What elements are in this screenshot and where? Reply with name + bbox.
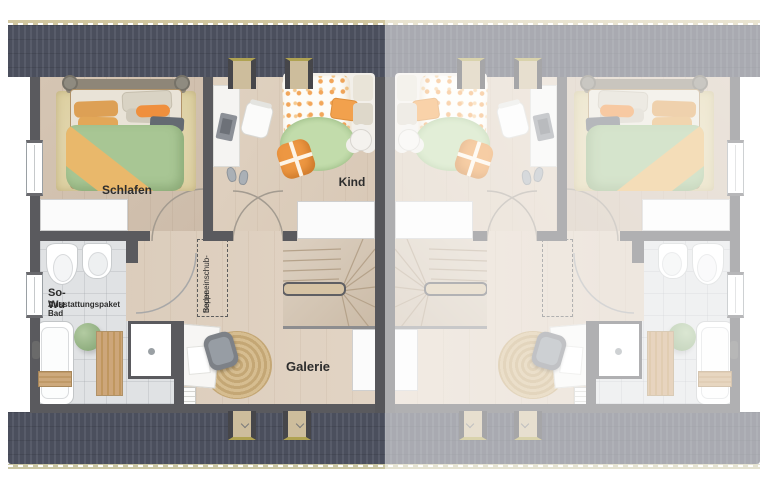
bathtub-tray [698, 371, 732, 387]
child-desk [213, 85, 240, 167]
double-bed [584, 79, 704, 191]
pillow [652, 100, 697, 118]
bidet [82, 243, 112, 279]
child-room-label: Kind [330, 175, 374, 189]
double-bed [66, 79, 186, 191]
interior-wall [537, 231, 557, 241]
bathtub-faucet [730, 341, 738, 359]
wooden-bath-mat [647, 331, 674, 396]
roof-dormer [514, 58, 542, 89]
bed-duvet [66, 125, 184, 191]
bathroom-door-jamb [632, 235, 644, 263]
knee-wall-storage [297, 201, 375, 239]
built-in-closet [352, 329, 376, 391]
pillow [397, 75, 417, 101]
bathtub [696, 321, 734, 405]
staircase [283, 239, 375, 329]
window [26, 272, 43, 318]
staircase [395, 239, 487, 329]
knee-wall-storage [395, 201, 473, 239]
toilet [46, 243, 78, 285]
child-desk [530, 85, 557, 167]
party-wall [385, 77, 395, 413]
roof-dormer [457, 58, 485, 89]
bathtub [36, 321, 74, 405]
attic-stair-outline [542, 239, 573, 317]
roof-dormer [459, 411, 487, 440]
gallery-label: Galerie [285, 359, 331, 374]
dormer-mark [296, 420, 304, 428]
roof-dormer [514, 411, 542, 440]
pillow [74, 100, 119, 118]
party-wall [375, 77, 385, 413]
roof-dormer [285, 58, 313, 89]
toilet [692, 243, 724, 285]
roof-ridge-top [8, 20, 760, 25]
shower [596, 321, 642, 379]
bidet [658, 243, 688, 279]
roof-ridge-bottom [8, 464, 760, 469]
roof-dormer [228, 58, 256, 89]
bed-duvet [586, 125, 704, 191]
bathroom-door-jamb [126, 235, 138, 263]
flower-pouf [350, 129, 372, 151]
roof-dormer [228, 411, 256, 440]
laptop [215, 113, 237, 142]
bathtub-tray [38, 371, 72, 387]
window [727, 140, 744, 196]
window [26, 140, 43, 196]
attic-stair-label: Bodeneinschub- treppe [197, 239, 228, 317]
laptop [532, 113, 554, 142]
pillow [353, 75, 373, 101]
outer-wall-bottom [30, 404, 385, 413]
interior-wall [283, 231, 297, 241]
bedroom-label: Schlafen [92, 183, 162, 197]
wall-bedroom-child [557, 77, 567, 241]
bathtub-faucet [32, 341, 40, 359]
knee-wall-storage [40, 199, 128, 231]
roof-strip-top [8, 25, 760, 77]
pillow [397, 103, 417, 125]
outer-wall-bottom [385, 404, 740, 413]
interior-wall [473, 231, 487, 241]
roof-ridge-dashes [8, 465, 760, 467]
floorplan-unit-left: Schlafen Kind So-Wu Ausstattungspaket Ba… [30, 77, 385, 413]
roof-strip-bottom [8, 412, 760, 464]
dormer-mark [466, 420, 474, 428]
window [727, 272, 744, 318]
wall-bedroom-child [203, 77, 213, 241]
wooden-bath-mat [96, 331, 123, 396]
floorplan-unit-right: Schlafen Kind So-Wu Ausstattungspaket Ba… [385, 77, 740, 413]
bath-option-subtitle: Ausstattungspaket Bad [48, 300, 120, 318]
dormer-mark [241, 420, 249, 428]
shower-wall [174, 321, 184, 413]
shower [128, 321, 174, 379]
dormer-mark [521, 420, 529, 428]
roof-dormer [283, 411, 311, 440]
floorplan-canvas: Schlafen Kind So-Wu Ausstattungspaket Ba… [0, 0, 775, 493]
pillow [353, 103, 373, 125]
shower-wall [586, 321, 596, 413]
knee-wall-storage [642, 199, 730, 231]
roof-ridge-dashes [8, 23, 760, 25]
flower-pouf [398, 129, 420, 151]
built-in-closet [394, 329, 418, 391]
attic-stair-label-line2: treppe [202, 290, 212, 313]
